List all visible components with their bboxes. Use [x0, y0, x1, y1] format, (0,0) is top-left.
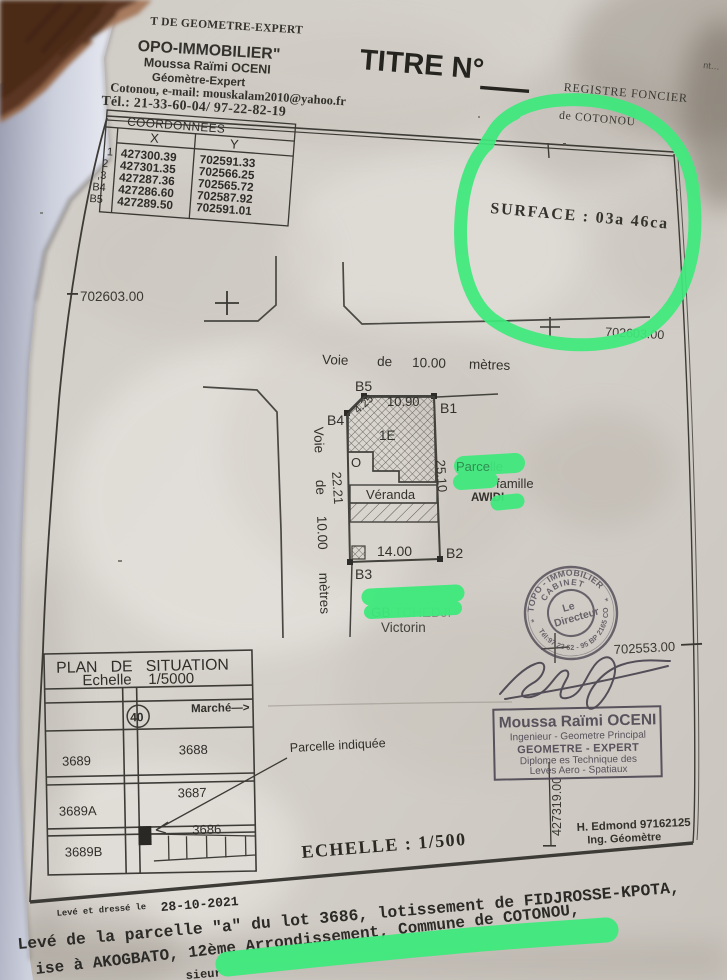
svg-text:10.90: 10.90 — [387, 394, 420, 409]
svg-text:25.10: 25.10 — [433, 459, 450, 493]
svg-text:Moussa Raïmi OCENI: Moussa Raïmi OCENI — [499, 711, 657, 731]
svg-text:B3: B3 — [355, 566, 372, 582]
svg-text:1: 1 — [107, 146, 114, 158]
svg-text:3689B: 3689B — [65, 844, 103, 860]
svg-text:famille: famille — [496, 476, 534, 491]
svg-text:3689: 3689 — [62, 753, 91, 769]
svg-text:Véranda: Véranda — [366, 487, 416, 502]
svg-text:3688: 3688 — [179, 742, 208, 758]
svg-text:de: de — [313, 480, 329, 496]
svg-text:Voie: Voie — [311, 427, 327, 454]
svg-text:Y: Y — [229, 136, 239, 152]
svg-text:1E: 1E — [379, 428, 396, 443]
svg-text:,3: ,3 — [97, 169, 107, 182]
svg-text:10.00: 10.00 — [314, 516, 330, 550]
svg-text:702553.00: 702553.00 — [613, 639, 675, 657]
svg-text:Echelle 1/5000: Echelle 1/5000 — [82, 670, 194, 689]
svg-text:40: 40 — [130, 710, 144, 724]
svg-text:B5: B5 — [89, 193, 103, 206]
svg-text:Leves Aero - Spatiaux: Leves Aero - Spatiaux — [530, 764, 628, 777]
svg-text:mètres: mètres — [316, 572, 332, 614]
svg-text:B2: B2 — [446, 545, 463, 561]
svg-text:Parce: Parce — [456, 459, 490, 474]
svg-text:O: O — [351, 455, 361, 470]
svg-text:702603.00: 702603.00 — [80, 289, 144, 304]
svg-text:Voie: Voie — [322, 352, 349, 368]
svg-text:22.21: 22.21 — [329, 471, 346, 505]
svg-text:10.00: 10.00 — [412, 355, 446, 371]
svg-text:3689A: 3689A — [59, 803, 97, 819]
svg-text:Victorin: Victorin — [381, 620, 426, 635]
svg-text:14.00: 14.00 — [377, 543, 412, 559]
svg-text:B1: B1 — [440, 400, 457, 416]
svg-text:B4: B4 — [92, 181, 106, 194]
svg-text:427319.00: 427319.00 — [550, 777, 564, 836]
svg-text:B4: B4 — [327, 412, 344, 428]
svg-text:de: de — [377, 354, 392, 369]
svg-text:3687: 3687 — [177, 785, 206, 801]
svg-text:Marché—>: Marché—> — [191, 702, 250, 715]
svg-text:mètres: mètres — [469, 357, 511, 373]
svg-text:B5: B5 — [355, 378, 372, 394]
svg-text:X: X — [150, 130, 160, 146]
svg-text:nt…: nt… — [703, 60, 720, 72]
svg-text:2: 2 — [102, 158, 109, 170]
